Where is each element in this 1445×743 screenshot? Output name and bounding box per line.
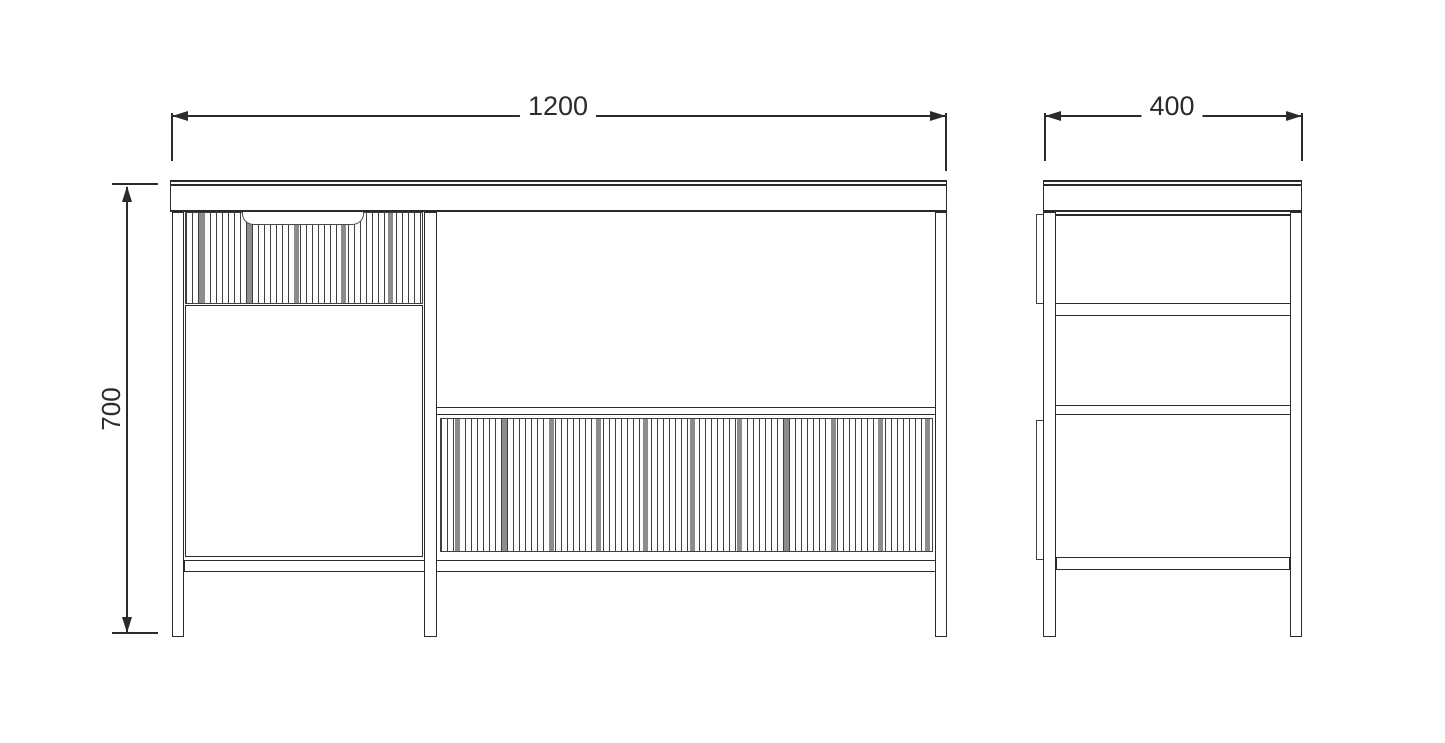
height-dimension-line xyxy=(126,187,128,633)
front-left-leg xyxy=(172,212,184,637)
side-left-leg xyxy=(1043,212,1056,637)
side-shelf-band-upper xyxy=(1056,303,1290,316)
front-bottom-rail xyxy=(184,560,936,572)
side-top-panel-line xyxy=(1056,214,1290,216)
width-dimension-label: 1200 xyxy=(520,93,596,120)
drawer-handle-recess xyxy=(242,212,364,225)
front-countertop xyxy=(170,180,947,212)
width-extension-line-right xyxy=(945,113,947,171)
width-arrow-left-icon xyxy=(172,111,188,121)
front-center-leg xyxy=(424,212,437,637)
height-dimension-label: 700 xyxy=(98,387,124,430)
side-shelf-band-lower xyxy=(1056,405,1290,415)
depth-arrow-right-icon xyxy=(1286,111,1302,121)
side-right-leg xyxy=(1290,212,1302,637)
height-extension-line-top xyxy=(112,183,158,185)
side-bottom-rail xyxy=(1056,557,1290,570)
technical-drawing: 1200 700 xyxy=(0,0,1445,743)
depth-arrow-left-icon xyxy=(1045,111,1061,121)
front-right-leg xyxy=(935,212,947,637)
height-arrow-top-icon xyxy=(122,186,132,202)
width-arrow-right-icon xyxy=(930,111,946,121)
depth-dimension-label: 400 xyxy=(1141,93,1202,120)
left-door-panel xyxy=(185,305,423,557)
side-countertop xyxy=(1043,180,1302,212)
height-arrow-bottom-icon xyxy=(122,617,132,633)
bottom-drawer-front xyxy=(440,418,933,552)
shelf-front-edge xyxy=(437,407,935,415)
height-extension-line-bottom xyxy=(112,632,158,634)
top-drawer-front xyxy=(185,212,423,304)
